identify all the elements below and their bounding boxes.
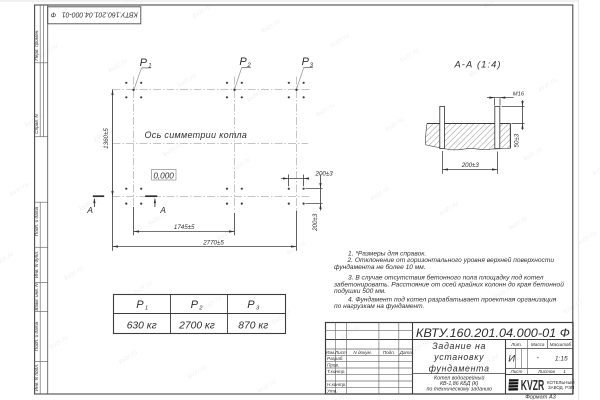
svg-text:N докум.: N докум. <box>353 350 372 355</box>
svg-text:Дата: Дата <box>399 350 413 355</box>
svg-text:А: А <box>159 205 166 215</box>
svg-text:200±3: 200±3 <box>315 171 334 178</box>
svg-text:Подп.: Подп. <box>383 350 395 355</box>
svg-text:Пров.: Пров. <box>327 363 339 368</box>
svg-text:Листов: Листов <box>537 369 555 374</box>
svg-text:Т.контр.: Т.контр. <box>327 369 346 374</box>
svg-text:P: P <box>191 299 199 311</box>
svg-text:Лит.: Лит. <box>510 342 522 347</box>
svg-text:2: 2 <box>246 63 251 69</box>
svg-text:2700 кг: 2700 кг <box>178 320 215 331</box>
svg-text:по нагрузкам на фундамент.: по нагрузкам на фундамент. <box>334 302 425 310</box>
svg-text:Инв. N дубл.: Инв. N дубл. <box>34 251 39 278</box>
svg-text:Разраб.: Разраб. <box>327 356 344 361</box>
svg-text:Задание на: Задание на <box>432 341 486 351</box>
svg-text:200±3: 200±3 <box>461 162 480 169</box>
svg-text:KVZR: KVZR <box>521 378 545 394</box>
svg-text:0,000: 0,000 <box>153 171 174 180</box>
svg-text:фундамента: фундамента <box>429 363 490 373</box>
svg-text:Лист: Лист <box>334 350 347 355</box>
svg-text:Изм.: Изм. <box>326 350 336 355</box>
svg-text:ЗАВОД. РЭП: ЗАВОД. РЭП <box>548 385 574 390</box>
svg-text:А-А (1:4): А-А (1:4) <box>454 60 502 70</box>
svg-text:подушки 500 мм.: подушки 500 мм. <box>334 287 386 295</box>
svg-text:КВТУ.160.201.04.000-01 Ф: КВТУ.160.201.04.000-01 Ф <box>416 326 570 340</box>
svg-text:Справ. N: Справ. N <box>34 114 39 134</box>
svg-text:Н.контр.: Н.контр. <box>327 382 346 387</box>
svg-text:1:15: 1:15 <box>555 356 568 363</box>
svg-text:Подп. и дата: Подп. и дата <box>34 206 39 236</box>
svg-text:Масштаб: Масштаб <box>550 342 572 347</box>
svg-text:Инв. N подл.: Инв. N подл. <box>34 364 39 391</box>
svg-text:2770±5: 2770±5 <box>202 239 224 246</box>
svg-text:установку: установку <box>433 352 484 362</box>
svg-text:М16: М16 <box>513 91 525 97</box>
svg-text:P: P <box>247 299 255 311</box>
svg-text:фундамента не более 10 мм.: фундамента не более 10 мм. <box>334 263 426 271</box>
svg-text:1360±5: 1360±5 <box>103 128 110 149</box>
svg-text:Перв. примен.: Перв. примен. <box>34 29 39 60</box>
svg-text:Утв.: Утв. <box>327 388 337 393</box>
svg-text:КВТУ.160.201.04.000-01 Ф: КВТУ.160.201.04.000-01 Ф <box>50 10 137 17</box>
svg-text:1: 1 <box>145 305 148 311</box>
svg-text:Формат А3: Формат А3 <box>525 395 556 400</box>
svg-text:Лист: Лист <box>510 369 523 374</box>
svg-text:И: И <box>508 353 515 364</box>
svg-text:870 кг: 870 кг <box>238 320 268 331</box>
svg-text:Взам. инв. N: Взам. инв. N <box>34 283 39 311</box>
svg-text:630 кг: 630 кг <box>127 320 157 331</box>
svg-text:Подп. и дата: Подп. и дата <box>34 321 39 351</box>
svg-text:P: P <box>140 57 148 69</box>
svg-text:P: P <box>302 56 310 68</box>
svg-text:1745±5: 1745±5 <box>174 224 195 231</box>
svg-text:P: P <box>239 56 247 68</box>
svg-text:1: 1 <box>563 369 566 374</box>
svg-text:Ось симметрии котла: Ось симметрии котла <box>145 130 248 140</box>
svg-text:200±3: 200±3 <box>312 213 319 232</box>
svg-text:Масса: Масса <box>531 342 545 347</box>
svg-text:по техническому заданию: по техническому заданию <box>426 386 491 392</box>
svg-text:А: А <box>86 205 93 215</box>
svg-text:P: P <box>136 299 144 311</box>
svg-text:1: 1 <box>148 63 151 69</box>
svg-text:50±3: 50±3 <box>513 133 520 147</box>
